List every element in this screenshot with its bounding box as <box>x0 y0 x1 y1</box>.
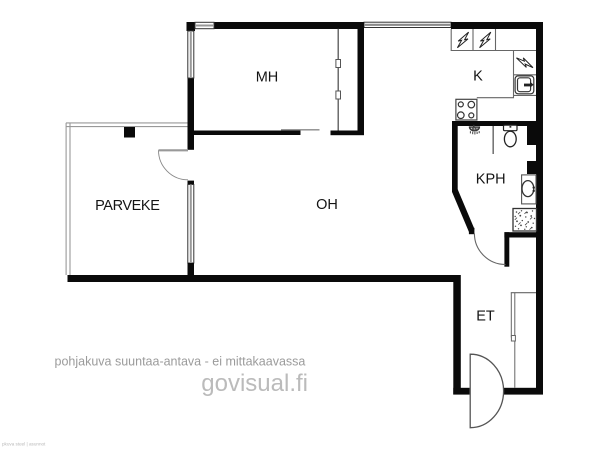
svg-text:KPH: KPH <box>476 172 506 188</box>
svg-text:PARVEKE: PARVEKE <box>95 198 160 214</box>
svg-text:govisual.fi: govisual.fi <box>201 370 308 397</box>
svg-text:pohjakuva suuntaa-antava - ei: pohjakuva suuntaa-antava - ei mittakaava… <box>55 354 306 368</box>
svg-text:OH: OH <box>316 197 338 213</box>
svg-text:pkuva steel | asunnot: pkuva steel | asunnot <box>2 442 46 447</box>
svg-text:MH: MH <box>256 70 279 86</box>
svg-text:K: K <box>473 69 483 85</box>
svg-text:ET: ET <box>476 309 495 325</box>
